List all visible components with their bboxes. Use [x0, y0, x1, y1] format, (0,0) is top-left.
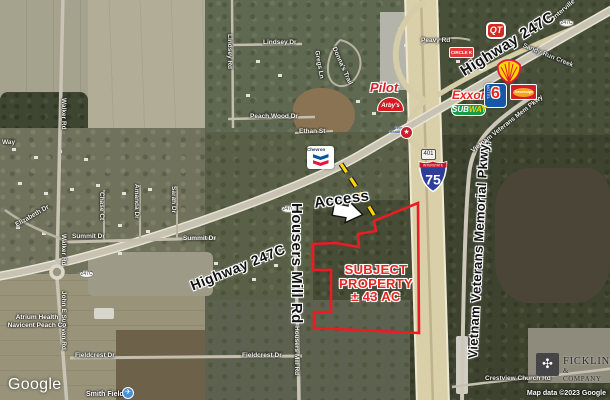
property-annotation-layer [0, 0, 610, 400]
google-logo[interactable]: Google [8, 376, 61, 394]
fickling-wordmark: FICKLING [563, 356, 610, 367]
fickling-company-logo: ✣ FICKLING & COMPANY [536, 352, 608, 378]
fickling-company-wordmark: & COMPANY [563, 367, 608, 383]
subject-property-label: SUBJECT PROPERTY ± 43 AC [329, 263, 423, 304]
satellite-map[interactable]: 247C 247C 247C 401 INTERSTATE 75 Walker … [0, 0, 610, 400]
map-attribution: Map data ©2023 Google [527, 390, 606, 397]
housers-mill-rd-label: Housers Mill Rd [288, 203, 305, 343]
fickling-mark-icon: ✣ [536, 353, 559, 376]
subject-line3: ± 43 AC [351, 289, 400, 304]
